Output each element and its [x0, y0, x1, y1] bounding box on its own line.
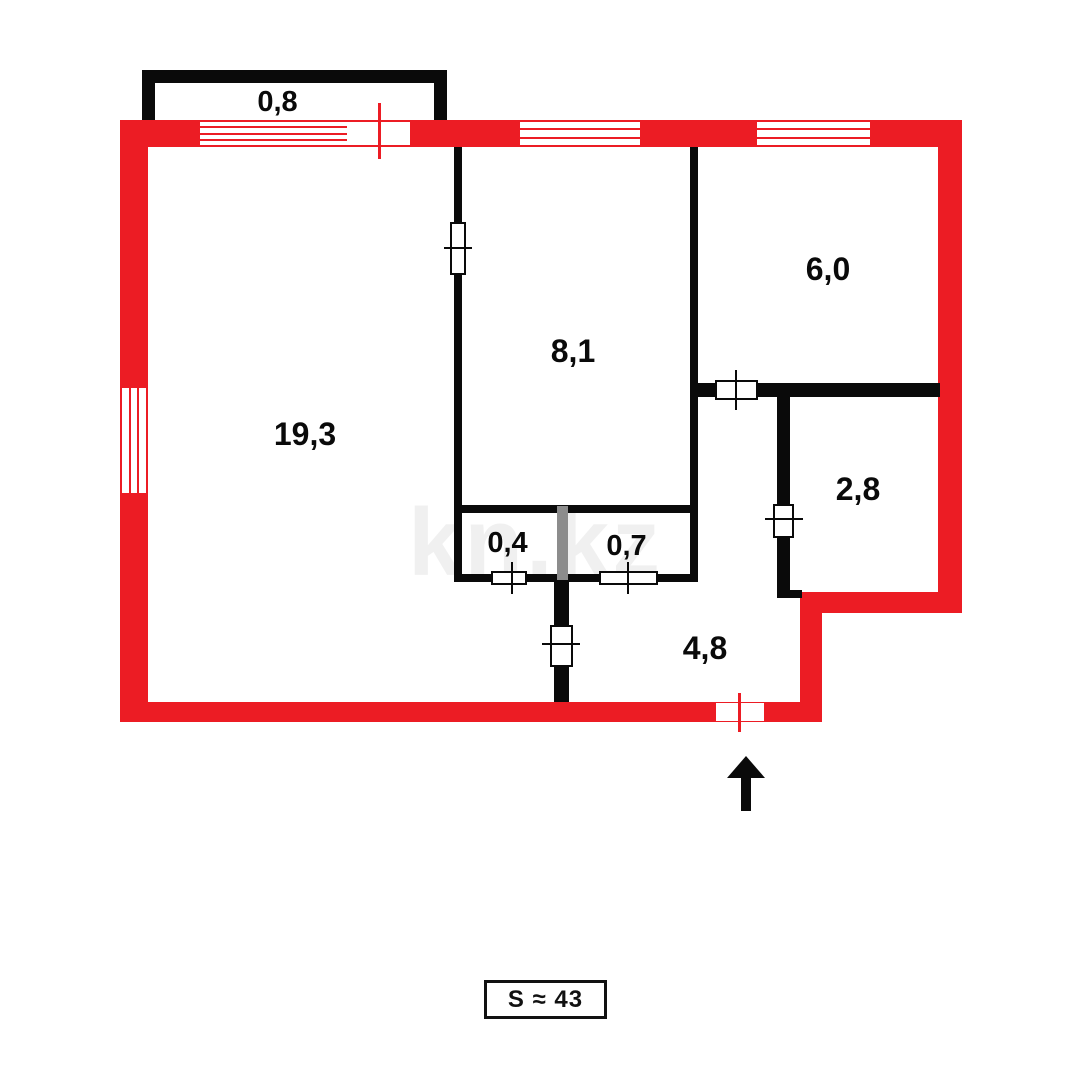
window-pane-line [200, 126, 347, 128]
floorplan-canvas: kn.kz 0,8 [0, 0, 1080, 1080]
exterior-wall-step-horizontal [800, 592, 962, 613]
bathroom-bottom-stub [777, 590, 802, 598]
closet-right-door-tick [627, 562, 629, 594]
wall-living-room-divider [454, 147, 462, 582]
exterior-wall-step-vertical [800, 592, 822, 722]
window-pane-line [200, 139, 347, 141]
window-top-3 [757, 120, 870, 147]
exterior-wall-right [938, 120, 962, 613]
entrance-door-tick [738, 693, 741, 732]
wall-room-hall-divider [690, 147, 698, 582]
kitchen-door-tick [735, 370, 737, 410]
hallway-door-opening [550, 625, 573, 667]
window-pane-line [520, 137, 640, 139]
kitchen-area-label: 6,0 [773, 251, 883, 287]
balcony-area-label: 0,8 [240, 84, 315, 120]
entrance-arrow-shaft [741, 777, 751, 811]
window-pane-line [757, 137, 870, 139]
living-room-door-tick [444, 247, 472, 249]
balcony-wall-right [434, 70, 447, 122]
closet-left-door-opening [491, 571, 527, 585]
room-area-label: 8,1 [518, 333, 628, 369]
window-pane-line [757, 128, 870, 130]
bathroom-left-wall [777, 397, 790, 598]
window-pane-line [137, 388, 139, 493]
window-left [120, 388, 148, 493]
total-area-box: S ≈ 43 [484, 980, 607, 1019]
balcony-wall-top [142, 70, 447, 83]
living-room-area-label: 19,3 [250, 416, 360, 452]
entrance-arrow-head [727, 756, 765, 778]
balcony-door-tick [378, 103, 381, 159]
closet-right-area-label: 0,7 [589, 528, 664, 564]
balcony-wall-left [142, 70, 155, 122]
closet-partition [557, 506, 568, 580]
bathroom-door-opening [773, 504, 794, 538]
bathroom-door-tick [765, 518, 803, 520]
closet-top-wall [454, 505, 698, 513]
total-area-label: S ≈ 43 [508, 986, 583, 1014]
window-pane-line [129, 388, 131, 493]
closet-left-door-tick [511, 562, 513, 594]
window-top-2 [520, 120, 640, 147]
entrance-arrow-icon [727, 756, 765, 812]
window-pane-line [200, 133, 347, 135]
closet-left-area-label: 0,4 [470, 525, 545, 561]
hallway-door-tick [542, 643, 580, 645]
window-top-1 [200, 120, 347, 147]
hallway-area-label: 4,8 [650, 630, 760, 666]
bathroom-area-label: 2,8 [803, 471, 913, 507]
window-pane-line [520, 128, 640, 130]
